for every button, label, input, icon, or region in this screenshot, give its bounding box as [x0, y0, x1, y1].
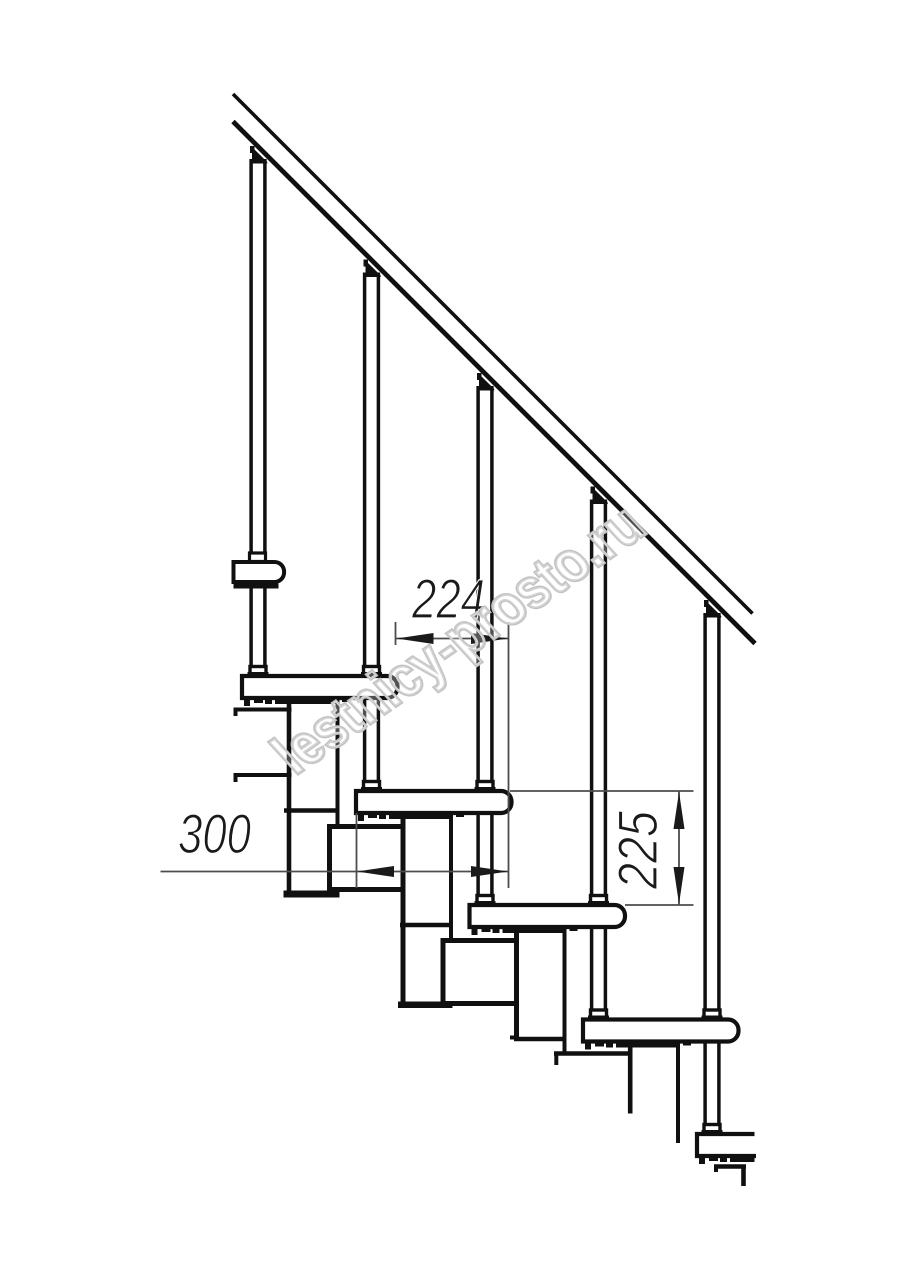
svg-text:300: 300 — [178, 802, 251, 865]
svg-text:225: 225 — [606, 810, 669, 890]
